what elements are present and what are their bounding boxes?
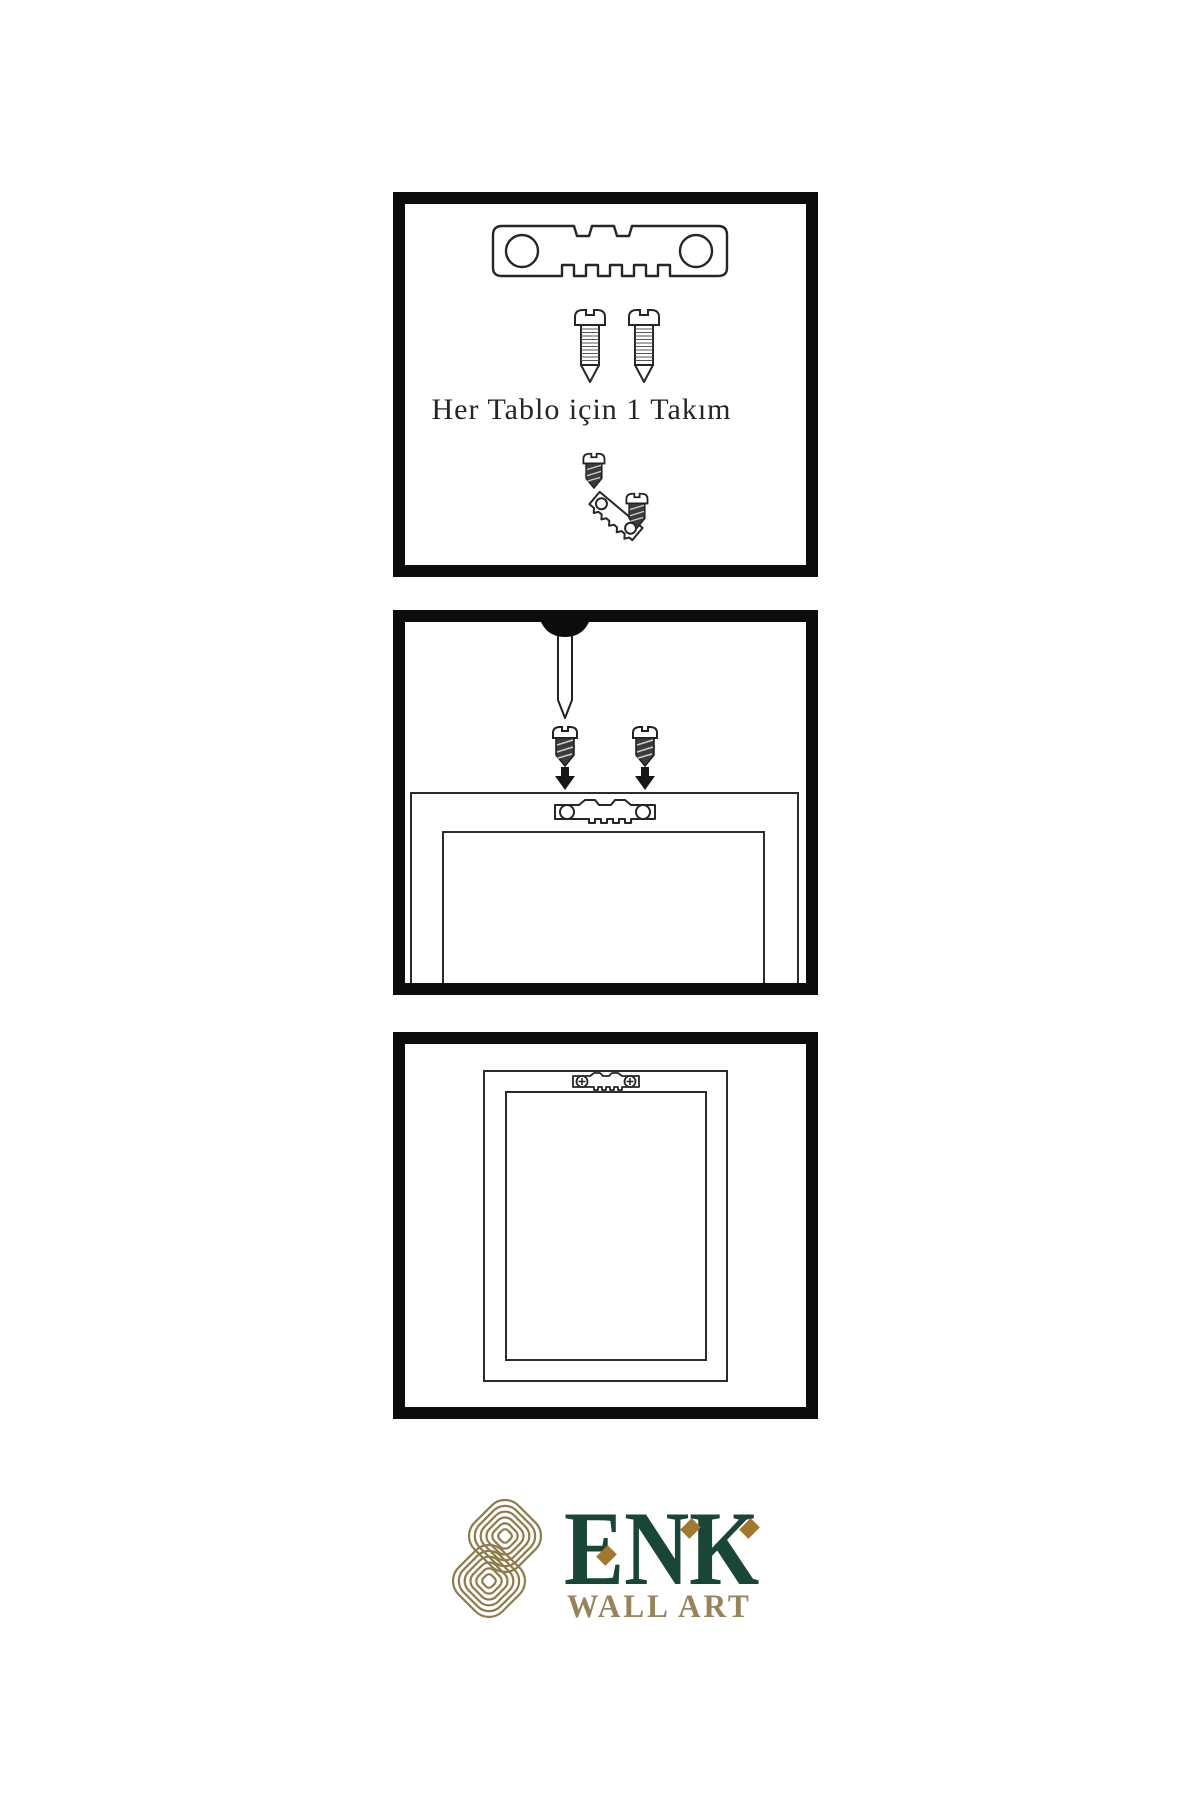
- instruction-sheet: Her Tablo için 1 Takım: [0, 0, 1200, 1800]
- knot-logo-icon: [437, 1490, 557, 1627]
- screw-icon: [627, 307, 661, 383]
- dark-screw-icon: [628, 725, 662, 767]
- step-2-panel: [393, 610, 818, 995]
- arrow-down-icon: [554, 767, 576, 790]
- hanger-assembly-icon: [578, 452, 656, 548]
- sawtooth-hanger-mounted-icon: [572, 1072, 640, 1092]
- nail-icon: [541, 622, 589, 722]
- dark-screw-icon: [583, 454, 604, 488]
- step-3-panel: [393, 1032, 818, 1419]
- frame-inner-outline: [505, 1091, 707, 1361]
- step-1-caption: Her Tablo için 1 Takım: [393, 393, 782, 427]
- dark-screw-icon: [548, 725, 582, 767]
- screw-icon: [573, 307, 607, 383]
- sawtooth-hanger-icon: [490, 223, 730, 279]
- step-1-panel: Her Tablo için 1 Takım: [393, 192, 818, 577]
- brand-name: ENK: [564, 1496, 759, 1602]
- arrow-down-icon: [634, 767, 656, 790]
- brand-tagline: WALL ART: [567, 1591, 752, 1624]
- frame-back-inner-outline: [442, 831, 765, 995]
- sawtooth-hanger-small-icon: [553, 797, 657, 827]
